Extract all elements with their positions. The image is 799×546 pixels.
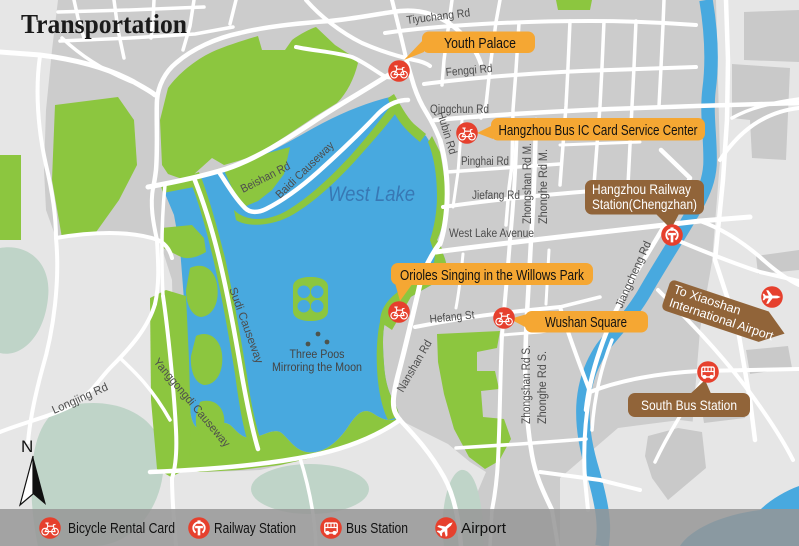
svg-text:Orioles Singing in the Willows: Orioles Singing in the Willows Park [400,267,584,284]
svg-text:Zhonghe Rd S.: Zhonghe Rd S. [537,351,549,424]
svg-text:Bicycle Rental Card: Bicycle Rental Card [68,520,175,537]
svg-text:Pinghai Rd: Pinghai Rd [461,156,509,168]
svg-text:South Bus Station: South Bus Station [641,397,737,413]
svg-text:Airport: Airport [461,521,506,537]
svg-text:Bus Station: Bus Station [346,520,408,537]
svg-text:Youth Palace: Youth Palace [444,35,516,52]
svg-text:Hangzhou Bus IC Card Service C: Hangzhou Bus IC Card Service Center [499,122,698,139]
svg-text:Jiefang Rd: Jiefang Rd [472,190,520,202]
svg-text:Mirroring the Moon: Mirroring the Moon [272,362,362,374]
svg-text:West Lake Avenue: West Lake Avenue [449,228,534,240]
svg-text:Three Poos: Three Poos [290,349,345,361]
svg-text:Zhongshan Rd M.: Zhongshan Rd M. [522,143,534,224]
svg-text:Hangzhou Railway: Hangzhou Railway [592,181,691,197]
svg-text:Transportation: Transportation [21,9,187,39]
svg-text:Station(Chengzhan): Station(Chengzhan) [592,196,697,212]
svg-text:Zhongshan Rd S.: Zhongshan Rd S. [521,345,533,424]
svg-text:N: N [21,437,33,456]
svg-text:Wushan Square: Wushan Square [545,314,627,331]
svg-text:Zhonghe Rd M.: Zhonghe Rd M. [538,149,550,224]
svg-text:Railway Station: Railway Station [214,520,296,537]
svg-text:West Lake: West Lake [328,183,415,206]
